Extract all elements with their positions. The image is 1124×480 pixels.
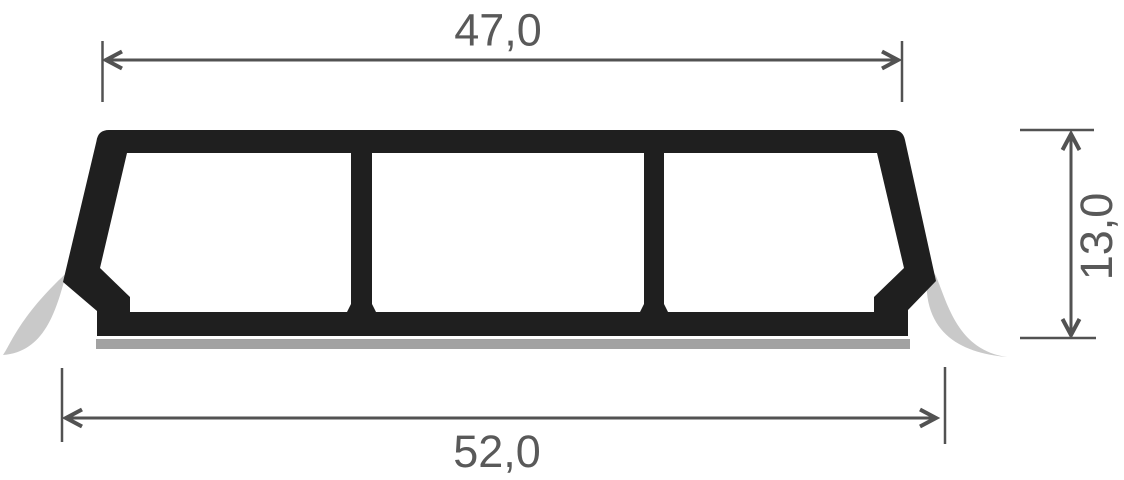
svg-text:47,0: 47,0 <box>454 5 542 56</box>
svg-text:52,0: 52,0 <box>453 426 541 477</box>
svg-text:13,0: 13,0 <box>1071 193 1122 281</box>
